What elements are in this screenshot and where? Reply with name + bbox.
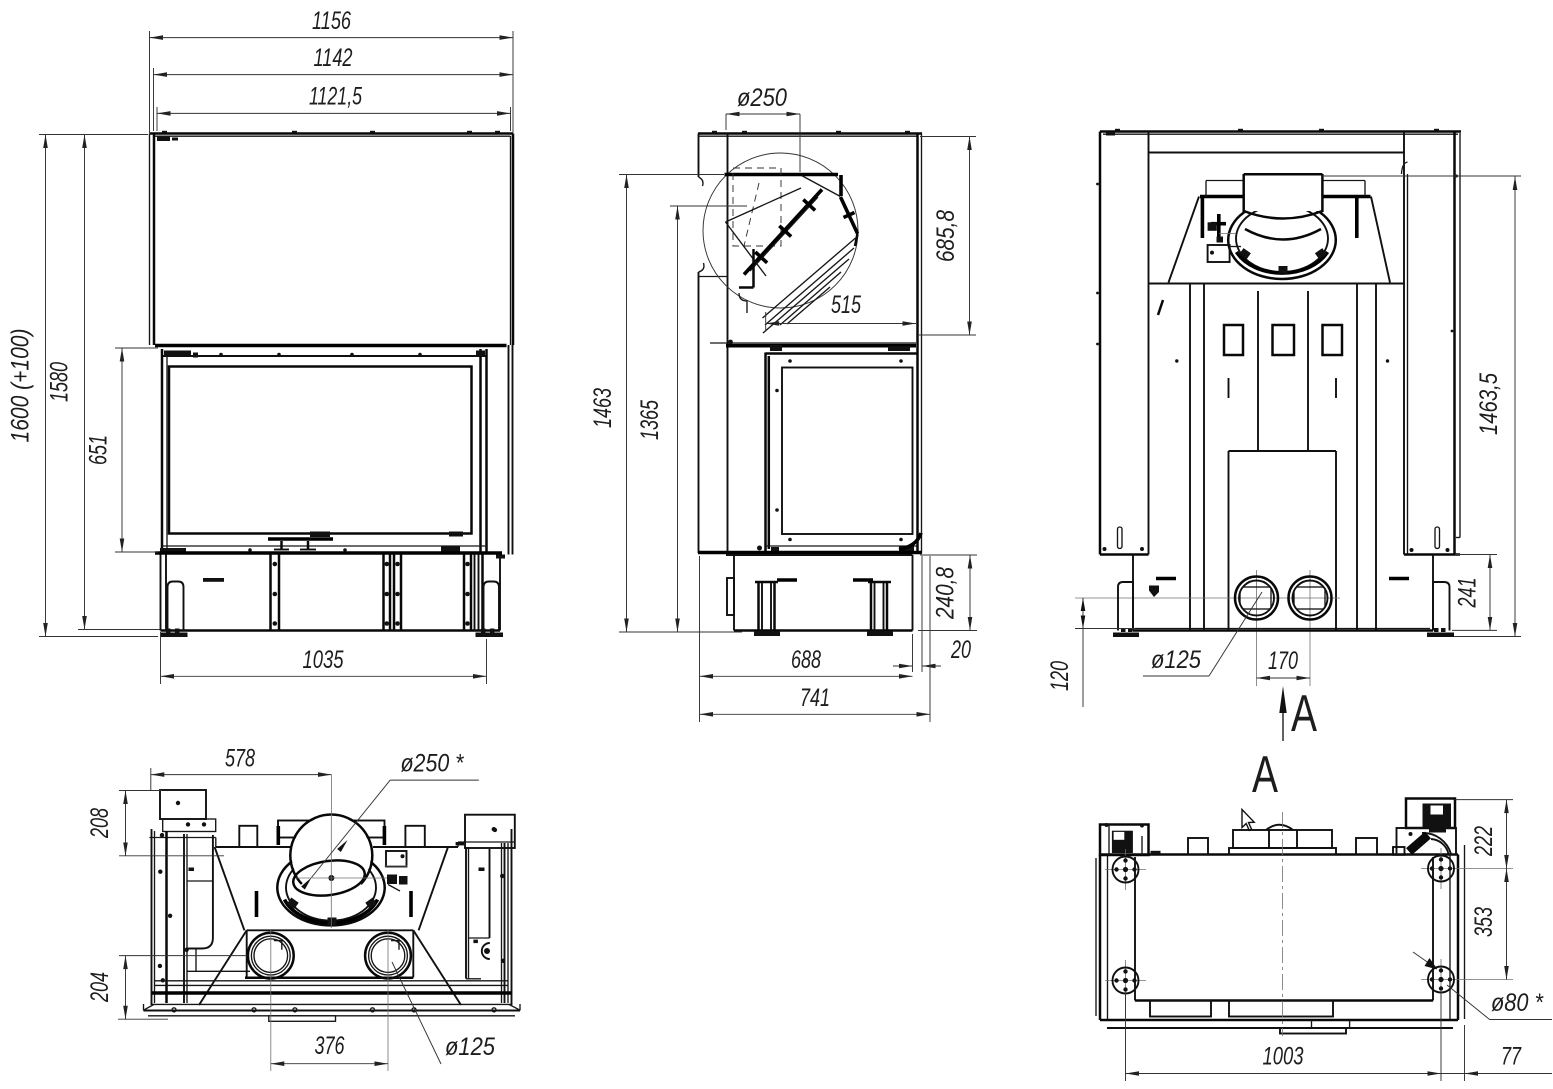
svg-text:1600 (+100): 1600 (+100) [7,329,35,443]
svg-text:A: A [1252,746,1278,804]
svg-text:ø125: ø125 [1151,646,1201,674]
svg-text:578: 578 [225,745,255,773]
svg-text:ø250 *: ø250 * [401,750,465,778]
svg-text:1003: 1003 [1263,1043,1304,1071]
svg-text:1156: 1156 [312,7,351,35]
svg-text:741: 741 [800,684,830,712]
svg-text:77: 77 [1501,1043,1522,1071]
svg-text:1580: 1580 [46,362,74,402]
svg-text:120: 120 [1046,661,1074,691]
svg-text:1142: 1142 [314,44,353,72]
svg-text:1463,5: 1463,5 [1475,373,1503,435]
svg-text:ø125: ø125 [445,1033,495,1061]
svg-text:20: 20 [950,636,971,664]
svg-text:376: 376 [315,1032,345,1060]
svg-text:ø80 *: ø80 * [1491,989,1544,1017]
svg-text:1463: 1463 [589,388,617,428]
svg-text:240,8: 240,8 [932,567,960,620]
svg-text:1121,5: 1121,5 [309,83,362,111]
svg-text:1035: 1035 [303,646,344,674]
svg-text:208: 208 [86,808,114,839]
svg-text:515: 515 [831,291,861,319]
svg-text:685,8: 685,8 [932,210,960,262]
svg-text:A: A [1291,685,1317,743]
svg-text:353: 353 [1470,907,1498,937]
svg-text:204: 204 [86,972,114,1003]
svg-text:651: 651 [85,435,113,465]
svg-text:170: 170 [1268,647,1298,675]
svg-text:ø250: ø250 [737,84,787,112]
svg-text:688: 688 [791,646,821,674]
svg-text:241: 241 [1454,578,1482,609]
svg-text:1365: 1365 [636,400,664,440]
svg-text:222: 222 [1470,826,1498,857]
